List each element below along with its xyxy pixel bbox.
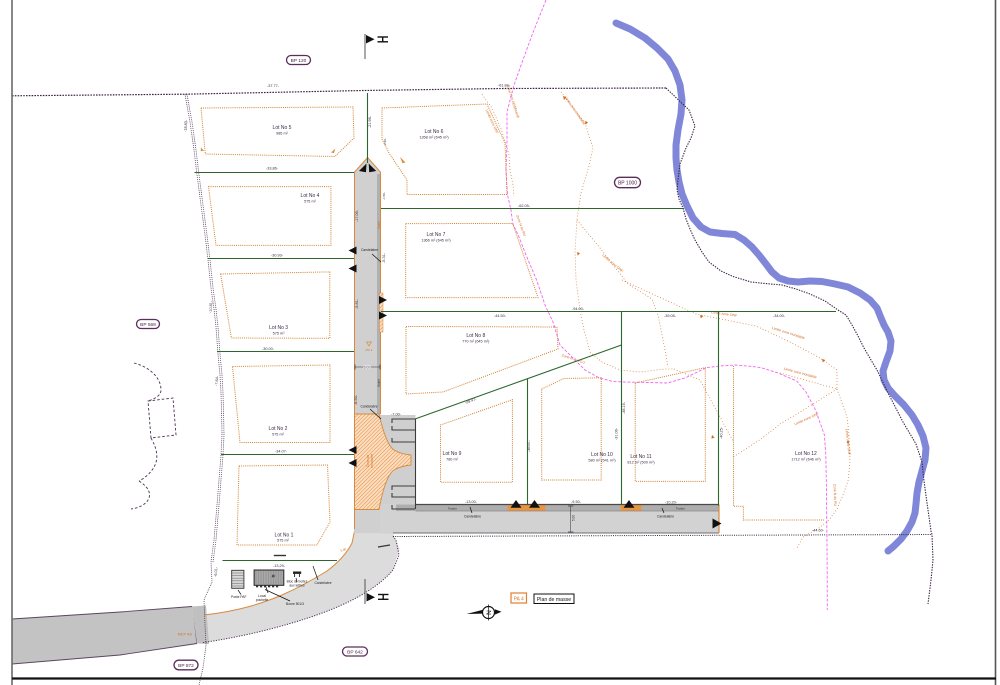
svg-text:BP 642: BP 642 xyxy=(347,649,363,655)
svg-text:-6.01-: -6.01- xyxy=(214,566,219,577)
svg-text:-36.67-: -36.67- xyxy=(527,439,531,452)
svg-text:Zone N du RU: Zone N du RU xyxy=(833,484,838,507)
svg-text:Lot No 9: Lot No 9 xyxy=(443,451,462,457)
svg-text:Borne 501/3: Borne 501/3 xyxy=(286,602,304,606)
svg-text:-5.31-: -5.31- xyxy=(382,252,386,263)
svg-text:RCT 43: RCT 43 xyxy=(178,632,192,637)
svg-text:BP 569: BP 569 xyxy=(140,322,156,328)
svg-text:5.00: 5.00 xyxy=(572,515,576,521)
svg-text:-44.60-: -44.60- xyxy=(812,529,825,533)
svg-text:Lot No 12: Lot No 12 xyxy=(795,451,817,457)
svg-text:Trottoir: Trottoir xyxy=(448,507,457,511)
svg-text:-48.19-: -48.19- xyxy=(622,401,626,414)
svg-text:-7.00-: -7.00- xyxy=(391,413,402,417)
svg-text:-34.07-: -34.07- xyxy=(275,450,288,454)
svg-text:aux lettres: aux lettres xyxy=(289,583,305,587)
svg-text:-94.00-: -94.00- xyxy=(572,307,585,311)
svg-text:Lot No 4: Lot No 4 xyxy=(301,193,320,199)
svg-text:1712 m² (646 m²): 1712 m² (646 m²) xyxy=(791,458,821,462)
svg-text:-2.96-: -2.96- xyxy=(383,138,387,146)
svg-text:812 m² (500 m²): 812 m² (500 m²) xyxy=(627,461,655,465)
svg-text:-9.81-: -9.81- xyxy=(355,298,359,309)
svg-text:Lot No 2: Lot No 2 xyxy=(269,426,288,432)
svg-text:-44.50-: -44.50- xyxy=(494,314,507,318)
svg-text:Lot No 11: Lot No 11 xyxy=(630,454,652,460)
svg-text:580 m² (541 m²): 580 m² (541 m²) xyxy=(588,459,616,463)
svg-text:770 m² (645 m²): 770 m² (645 m²) xyxy=(462,340,490,344)
svg-text:-40.25-: -40.25- xyxy=(720,426,724,439)
svg-text:-33.86-: -33.86- xyxy=(266,167,279,171)
svg-text:BP 120: BP 120 xyxy=(291,58,307,64)
svg-text:-37.77-: -37.77- xyxy=(267,84,280,88)
svg-text:6.00: 6.00 xyxy=(364,365,370,369)
svg-text:Candelabre: Candelabre xyxy=(315,581,332,585)
svg-text:-62.05-: -62.05- xyxy=(518,204,531,208)
svg-text:Candelabre: Candelabre xyxy=(361,405,378,409)
svg-text:Candelabre: Candelabre xyxy=(657,515,674,519)
svg-text:-8.50-: -8.50- xyxy=(354,394,358,405)
svg-text:-13.00-: -13.00- xyxy=(465,500,478,504)
svg-text:780 m²: 780 m² xyxy=(446,458,459,462)
svg-text:-10.81-: -10.81- xyxy=(209,300,214,313)
svg-text:985 m²: 985 m² xyxy=(276,132,289,136)
svg-text:Lot No 7: Lot No 7 xyxy=(427,232,446,238)
svg-text:-34.00-: -34.00- xyxy=(773,314,786,318)
svg-text:-10.20-: -10.20- xyxy=(665,501,678,505)
svg-text:Plan de masse: Plan de masse xyxy=(537,597,571,603)
svg-text:-39.05-: -39.05- xyxy=(664,314,677,318)
svg-text:-17.09-: -17.09- xyxy=(355,209,359,222)
svg-text:575 m²: 575 m² xyxy=(304,200,317,204)
svg-text:-31.06-: -31.06- xyxy=(615,427,619,440)
svg-text:-61.84-: -61.84- xyxy=(498,84,511,88)
svg-text:Lot No 3: Lot No 3 xyxy=(269,325,288,331)
svg-text:Lot No 5: Lot No 5 xyxy=(273,125,292,131)
svg-text:Lot No 10: Lot No 10 xyxy=(591,452,613,458)
svg-text:-30.93-: -30.93- xyxy=(271,254,284,258)
svg-text:-7.64-: -7.64- xyxy=(215,375,220,386)
svg-text:575 m²: 575 m² xyxy=(273,332,286,336)
svg-text:-30.00-: -30.00- xyxy=(262,347,275,351)
svg-text:N: N xyxy=(486,610,493,615)
svg-text:-21.96-: -21.96- xyxy=(368,115,372,128)
svg-text:BP 1000: BP 1000 xyxy=(618,180,637,186)
svg-text:1366 m² (645 m²): 1366 m² (645 m²) xyxy=(421,239,451,243)
svg-text:poubelle: poubelle xyxy=(256,598,269,602)
svg-text:PA 4: PA 4 xyxy=(514,597,524,603)
svg-text:1268 m² (645 m²): 1268 m² (645 m²) xyxy=(419,136,449,140)
svg-text:rencontre: rencontre xyxy=(370,454,374,468)
svg-text:575 m²: 575 m² xyxy=(272,433,285,437)
svg-text:Candelabre: Candelabre xyxy=(464,515,481,519)
svg-text:575 m²: 575 m² xyxy=(277,539,290,543)
svg-text:-9.50-: -9.50- xyxy=(571,500,582,504)
svg-text:PC 1: PC 1 xyxy=(366,348,373,352)
svg-text:BP 872: BP 872 xyxy=(178,663,194,669)
svg-text:Candelabre: Candelabre xyxy=(361,248,378,252)
svg-text:Lot No 8: Lot No 8 xyxy=(466,333,485,339)
svg-text:Trottoir: Trottoir xyxy=(676,507,685,511)
svg-text:-1.50-: -1.50- xyxy=(382,192,386,200)
svg-text:Poste PAF: Poste PAF xyxy=(231,595,247,599)
svg-text:-13,29-: -13,29- xyxy=(273,564,286,568)
svg-text:Lot No 6: Lot No 6 xyxy=(425,129,444,135)
svg-text:Voirie: Voirie xyxy=(377,221,381,229)
svg-text:Voirie: Voirie xyxy=(377,379,381,387)
